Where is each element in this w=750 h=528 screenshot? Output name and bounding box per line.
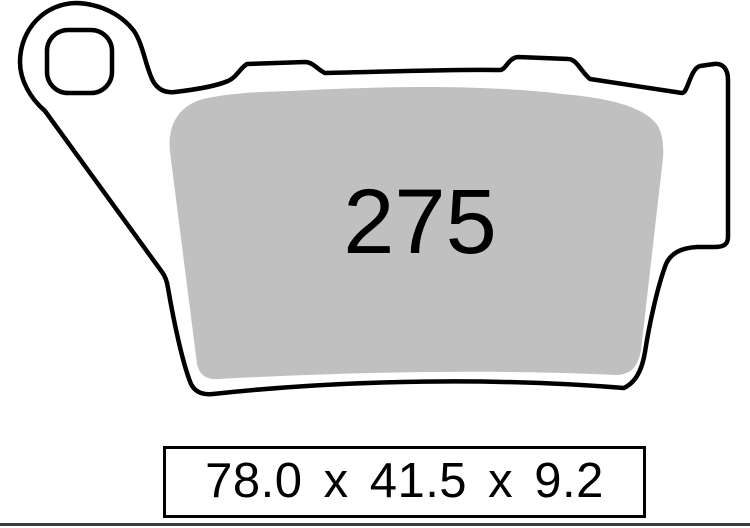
- pad-mounting-hole: [47, 30, 112, 93]
- pad-number: 275: [320, 176, 520, 268]
- dimensions-box: 78.0 x 41.5 x 9.2: [163, 446, 646, 518]
- brake-pad-diagram: 275 78.0 x 41.5 x 9.2: [0, 0, 750, 528]
- bottom-separator-line: [0, 523, 750, 526]
- dimensions-text: 78.0 x 41.5 x 9.2: [205, 457, 604, 508]
